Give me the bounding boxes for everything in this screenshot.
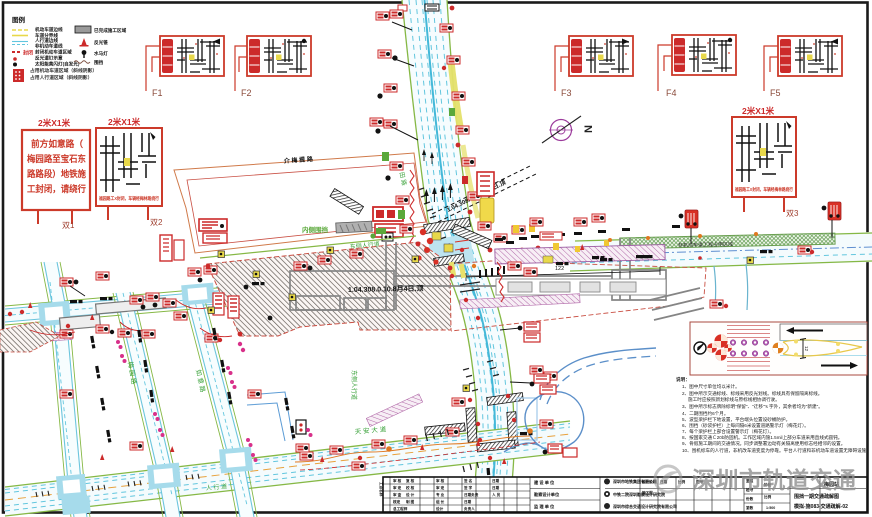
svg-text:已完成施工区域: 已完成施工区域	[94, 27, 127, 34]
svg-text:水马灯: 水马灯	[94, 50, 108, 57]
svg-text:审 定: 审 定	[436, 485, 445, 490]
svg-text:占用人行道区域（斜线阴影）: 占用人行道区域（斜线阴影）	[30, 74, 92, 81]
svg-text:双2: 双2	[150, 218, 163, 227]
svg-text:非机动车道线: 非机动车道线	[35, 43, 63, 50]
svg-text:6、围挡（砂袋护栏）上每间隔6米设置道路警示灯（梅花灯）。: 6、围挡（砂袋护栏）上每间隔6米设置道路警示灯（梅花灯）。	[682, 422, 809, 429]
svg-text:比例: 比例	[764, 494, 772, 499]
svg-text:反光道钉示意: 反光道钉示意	[35, 55, 63, 62]
svg-text:工封闭，请绕行: 工封闭，请绕行	[27, 183, 86, 194]
svg-text:F3: F3	[561, 88, 572, 98]
svg-text:中铁二院深圳勘察设计研究院: 中铁二院深圳勘察设计研究院	[613, 491, 665, 497]
svg-text:2米X1米: 2米X1米	[742, 106, 775, 116]
svg-text:2米X1米: 2米X1米	[108, 117, 141, 127]
svg-text:F4: F4	[666, 88, 677, 98]
svg-text:签 字: 签 字	[464, 485, 473, 490]
svg-text:设 计: 设 计	[406, 492, 415, 497]
svg-text:工点名称: 工点名称	[379, 482, 384, 497]
svg-text:设计: 设计	[436, 506, 444, 511]
svg-text:签 名: 签 名	[464, 478, 473, 483]
svg-text:审 核: 审 核	[436, 478, 445, 483]
svg-text:福园路工X封闭，车辆经梅林路绕行: 福园路工X封闭，车辆经梅林路绕行	[734, 186, 793, 193]
svg-text:1、图中尺寸单位均以米计。: 1、图中尺寸单位均以米计。	[682, 383, 740, 390]
svg-text:8、按国家交通Ｃ20b防固机。工作区域内施1.5mil上部分: 8、按国家交通Ｃ20b防固机。工作区域内施1.5mil上部分车道采用直线式圆钝。	[682, 434, 842, 441]
svg-text:制 图: 制 图	[406, 499, 415, 504]
svg-text:双3: 双3	[786, 209, 799, 218]
svg-text:前方如意路（: 前方如意路（	[31, 138, 83, 149]
svg-text:施工图: 施工图	[642, 490, 653, 495]
svg-text:双1: 双1	[62, 221, 75, 230]
svg-text:第数: 第数	[746, 505, 754, 510]
svg-text:内侧围挡: 内侧围挡	[302, 225, 329, 234]
svg-text:3、图中所示标志牌除标明"保留"、"迁移"'s 字外，其余者: 3、图中所示标志牌除标明"保留"、"迁移"'s 字外，其余者均为"新建"。	[682, 403, 823, 410]
svg-text:F2: F2	[241, 88, 252, 98]
svg-text:太阳能黄闪灯(自发光): 太阳能黄闪灯(自发光)	[35, 61, 80, 68]
svg-text:梅园路至宝石东: 梅园路至宝石东	[27, 153, 86, 164]
svg-text:7、每个梁护栏上部合设置警示灯（梅花灯）。: 7、每个梁护栏上部合设置警示灯（梅花灯）。	[682, 428, 774, 435]
svg-text:份数: 份数	[746, 496, 754, 501]
svg-text:施工时应按照新划标线与原标线相协调行驶。: 施工时应按照新划标线与原标线相协调行驶。	[688, 396, 780, 403]
svg-text:封闭: 封闭	[23, 50, 33, 57]
svg-text:封闭机动车道区域: 封闭机动车道区域	[35, 49, 72, 56]
svg-text:10、围机标车的人行道，非机改车道变度为停靠。平台人行道和非: 10、围机标车的人行道，非机改车道变度为停靠。平台人行道和非机动车道设置无障碍设…	[682, 447, 871, 454]
svg-text:图例: 图例	[12, 15, 26, 24]
svg-text:2米X1米: 2米X1米	[38, 118, 71, 128]
svg-text:建 设 单 位: 建 设 单 位	[533, 479, 555, 486]
svg-text:说明：: 说明：	[676, 376, 690, 383]
svg-text:F5: F5	[770, 88, 781, 98]
svg-text:反光锥: 反光锥	[94, 39, 108, 46]
svg-text:东侧人行道: 东侧人行道	[350, 370, 358, 400]
svg-text:非机动车道工程占用区域: 非机动车道工程占用区域	[678, 241, 733, 249]
svg-text:复 核: 复 核	[405, 478, 415, 483]
svg-text:F1: F1	[152, 88, 163, 98]
svg-text:日期: 日期	[492, 485, 500, 490]
svg-text:围挡: 围挡	[94, 59, 104, 66]
svg-text:4、二期围挡约6个月。: 4、二期围挡约6个月。	[682, 410, 728, 417]
svg-text:负责人: 负责人	[464, 506, 475, 511]
svg-text:围挡一期交通疏解图: 围挡一期交通疏解图	[794, 493, 839, 500]
svg-text:机动车道边线: 机动车道边线	[35, 26, 63, 33]
svg-text:1:500: 1:500	[766, 506, 775, 510]
svg-text:福园路工X封闭，车辆经梅林路绕行: 福园路工X封闭，车辆经梅林路绕行	[98, 195, 159, 202]
svg-text:12: 12	[804, 346, 809, 352]
svg-text:监 理 单 位: 监 理 单 位	[534, 503, 555, 510]
svg-text:核定: 核定	[393, 499, 401, 504]
svg-text:组 长: 组 长	[436, 499, 445, 504]
svg-text:专 业: 专 业	[436, 492, 445, 497]
svg-text:2、图中所示交通标线、标线采用反光划线。标线具有保留隔离标线: 2、图中所示交通标线、标线采用反光划线。标线具有保留隔离标线。	[682, 390, 822, 397]
svg-text:总工程师: 总工程师	[393, 506, 408, 511]
svg-text:占用机动车道区域（斜线阴影）: 占用机动车道区域（斜线阴影）	[30, 67, 97, 74]
svg-text:审 查: 审 查	[393, 492, 402, 497]
svg-text:勘察设计单位: 勘察设计单位	[534, 491, 560, 498]
svg-text:模拟-施083-交通疏解-02: 模拟-施083-交通疏解-02	[794, 503, 848, 510]
svg-text:9、骨假施工期间的交通情况。同步调整署边动有关隔离便用标志经: 9、骨假施工期间的交通情况。同步调整署边动有关隔离便用标志经相邻的设置。	[682, 440, 845, 447]
svg-text:审 核: 审 核	[393, 478, 402, 483]
svg-text:N: N	[583, 125, 595, 133]
svg-text:122: 122	[555, 266, 564, 272]
svg-text:审 定: 审 定	[393, 485, 402, 490]
svg-text:日期负责: 日期负责	[464, 492, 479, 497]
svg-text:5、波型梁护栏下地设置，平台端头位置设砂桶防护。: 5、波型梁护栏下地设置，平台端头位置设砂桶防护。	[682, 416, 790, 423]
svg-text:人 员: 人 员	[491, 492, 501, 497]
svg-text:深圳市轨道交通: 深圳市轨道交通	[692, 467, 857, 493]
svg-text:日期: 日期	[492, 478, 500, 483]
svg-text:深圳市综合交通设计研究院有限公司: 深圳市综合交通设计研究院有限公司	[613, 503, 677, 509]
svg-text:日期: 日期	[464, 499, 472, 504]
svg-text:路路段）地铁施: 路路段）地铁施	[27, 168, 86, 179]
svg-text:校 核: 校 核	[406, 485, 415, 490]
